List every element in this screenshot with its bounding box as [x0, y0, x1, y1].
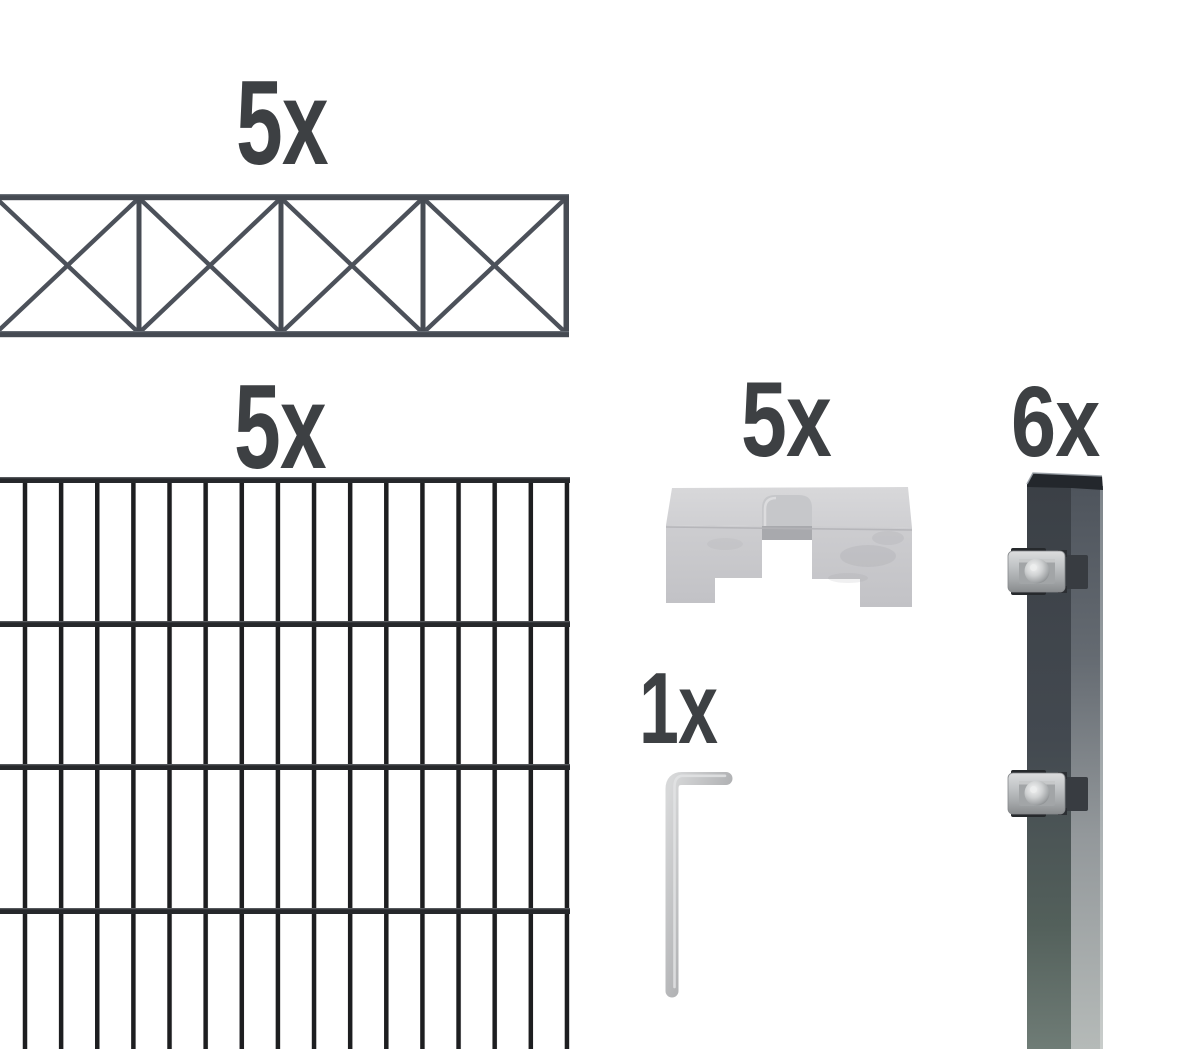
mesh-panel-graphic	[0, 477, 570, 1049]
quantity-label-mesh-panel: 5x	[234, 367, 326, 487]
hex-key-body	[672, 779, 726, 992]
quantity-label-cross-panel: 5x	[236, 63, 328, 183]
cross-panel-rails	[0, 194, 569, 337]
clamp-screw-upper	[1025, 559, 1050, 584]
post-edge-highlight	[1100, 486, 1103, 1049]
hex-key-graphic	[655, 765, 740, 1005]
fence-post-graphic	[1005, 470, 1103, 1049]
cover-plate-left-wing	[666, 525, 762, 603]
product-image: 5x 5x 5x 1x 6x	[0, 0, 1200, 1049]
cover-plate-graphic	[663, 486, 913, 610]
hex-key-highlight	[675, 776, 726, 987]
post-clamp-lower	[1008, 770, 1088, 817]
clamp-screw-lower	[1025, 781, 1050, 806]
quantity-label-cover-plate: 5x	[741, 366, 831, 473]
quantity-label-post: 6x	[1011, 372, 1099, 472]
post-clamp-upper	[1008, 548, 1088, 595]
mesh-vertical-bars	[0, 477, 570, 1049]
quantity-label-hex-key: 1x	[639, 659, 717, 760]
cross-topper-panel-graphic	[0, 193, 572, 339]
